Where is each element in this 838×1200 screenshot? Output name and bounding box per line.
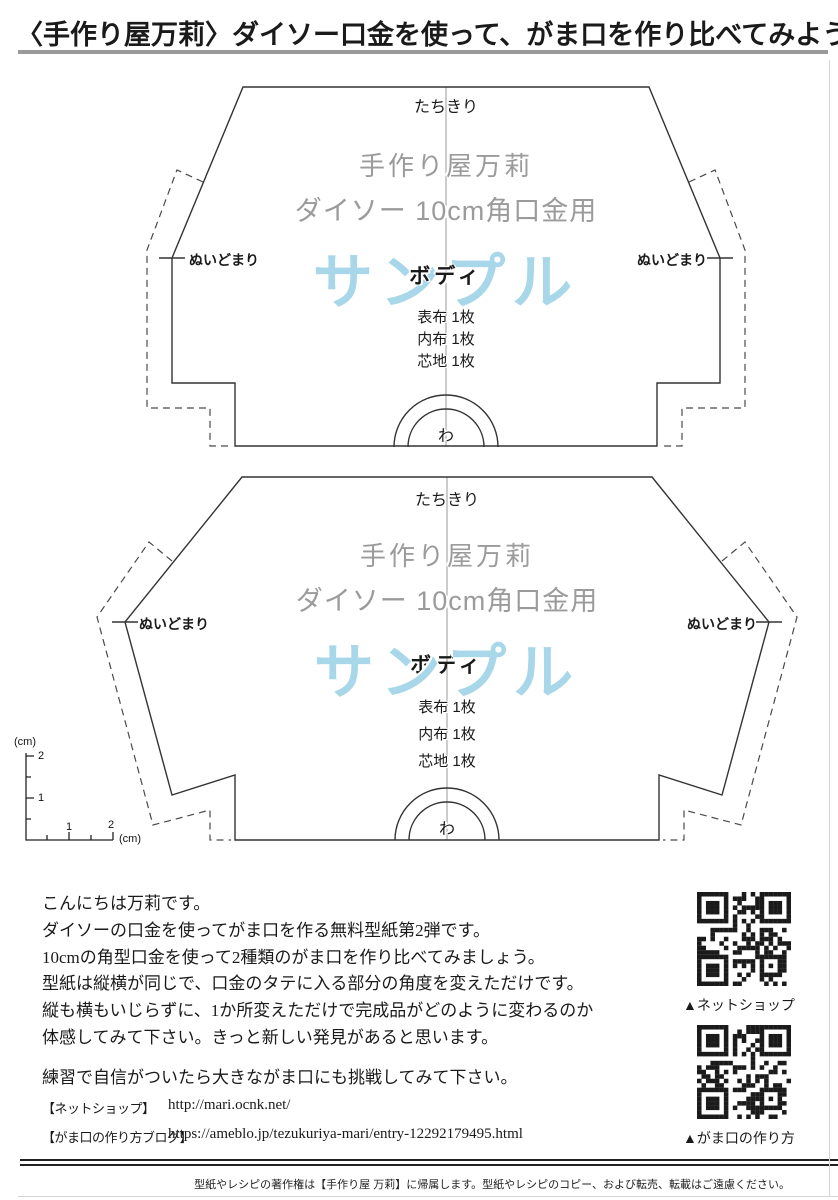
pattern-2-material-lining: 内布 1枚 <box>347 723 547 744</box>
pattern-1-fold-label: わ <box>416 422 476 446</box>
scale-ruler <box>26 753 113 840</box>
pattern-1-material-lining: 内布 1枚 <box>346 328 546 349</box>
net-shop-qr-code <box>697 892 791 986</box>
pattern-2-fold-label: わ <box>417 815 477 839</box>
pattern-1-cut-label: たちきり <box>346 93 546 117</box>
ruler-horizontal-ticks <box>47 832 113 840</box>
pattern-1-seam-stop-label-left: ぬいどまり <box>189 250 259 270</box>
pattern-1-material-interfacing: 芯地 1枚 <box>346 350 546 371</box>
ruler-axes <box>26 753 113 840</box>
pattern-sheet-page: 〈手作り屋万莉〉ダイソー口金を使って、がま口を作り比べてみよう <box>0 0 838 1200</box>
ruler-vertical-ticks <box>26 756 34 819</box>
pattern-1-frame-size-text: ダイソー 10cm角口金用 <box>146 189 746 228</box>
pattern-1-brand-text: 手作り屋万莉 <box>146 146 746 183</box>
pattern-2-material-interfacing: 芯地 1枚 <box>347 750 547 771</box>
howto-qr-code <box>697 1025 791 1119</box>
pattern-2-sample-watermark: サンプル <box>97 624 797 711</box>
pattern-2-brand-text: 手作り屋万莉 <box>147 536 747 573</box>
pattern-1-piece-name: ボディ <box>296 260 596 290</box>
pattern-1-material-outer: 表布 1枚 <box>346 306 546 327</box>
pattern-2-frame-size-text: ダイソー 10cm角口金用 <box>147 579 747 618</box>
pattern-1-seam-stop-label-right: ぬいどまり <box>637 250 707 270</box>
pattern-2-cut-label: たちきり <box>347 486 547 510</box>
